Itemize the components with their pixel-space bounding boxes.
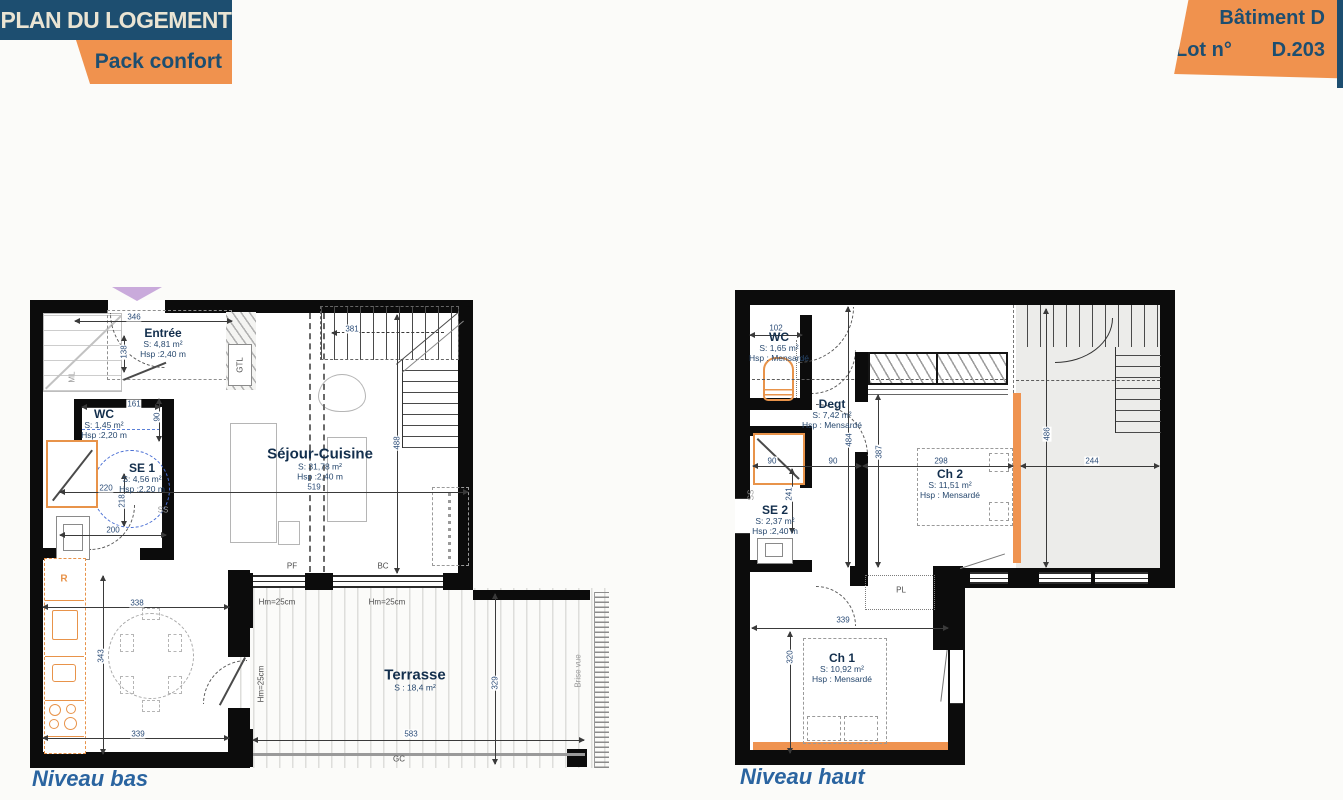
plan-caption-bas: Niveau bas — [32, 766, 148, 792]
dimension-label-218: 218 — [118, 493, 127, 508]
dimension-label-519: 519 — [306, 483, 321, 492]
dimension-label-138: 138 — [120, 344, 129, 359]
stairs — [1115, 347, 1161, 433]
pack-label: Pack confort — [95, 50, 222, 74]
pillow-icon — [807, 716, 841, 741]
entry-arrow-icon — [112, 287, 162, 301]
chair-icon — [120, 634, 134, 652]
dimension-label-339: 339 — [130, 730, 145, 739]
dimension-line — [753, 466, 861, 467]
dimension-line — [60, 535, 166, 536]
pillow-icon — [989, 502, 1009, 521]
dimension-label-381: 381 — [344, 325, 359, 334]
tag-label-ss: SS — [158, 506, 169, 515]
dimension-line — [1021, 466, 1159, 467]
dimension-label-200: 200 — [105, 526, 120, 535]
dimension-line — [103, 576, 104, 754]
dimension-label-90: 90 — [153, 412, 162, 423]
dimension-label-339: 339 — [835, 616, 850, 625]
dimension-label-486: 486 — [1043, 426, 1052, 441]
dimension-label-346: 346 — [126, 313, 141, 322]
dimension-line — [75, 321, 232, 322]
dimension-label-338: 338 — [129, 599, 144, 608]
insulation-strip — [1013, 393, 1021, 563]
wall — [228, 708, 250, 752]
sofa-icon — [230, 423, 277, 543]
window — [970, 572, 1008, 584]
building-label: Bâtiment D — [1219, 7, 1325, 30]
washbasin-inner — [63, 524, 83, 551]
chair-icon — [168, 676, 182, 694]
dimension-label-241: 241 — [785, 486, 794, 501]
wall — [228, 570, 250, 657]
tag-label-ml: ML — [68, 371, 77, 382]
tag-label-pl: PL — [896, 586, 906, 595]
dimension-label-161: 161 — [126, 400, 141, 409]
armchair-icon — [318, 374, 366, 412]
room-label-entr-e: EntréeS: 4,81 m²Hsp :2,40 m — [140, 327, 186, 359]
window-pf — [253, 575, 305, 588]
edge-strip — [1337, 0, 1343, 88]
brise-vue-screen — [594, 592, 609, 768]
dimension-label-484: 484 — [845, 432, 854, 447]
hob-burner-icon — [66, 704, 76, 714]
dimension-label-329: 329 — [491, 675, 500, 690]
dimension-label-298: 298 — [933, 457, 948, 466]
hob-burner-icon — [64, 717, 77, 730]
wall — [140, 548, 174, 560]
terrace-edge — [253, 753, 585, 756]
wall — [735, 290, 1175, 305]
pack-banner: Pack confort — [76, 40, 232, 84]
chair-icon — [142, 700, 160, 712]
page-title: PLAN DU LOGEMENT — [1, 7, 232, 34]
kitchen-divider — [45, 700, 84, 701]
chair-icon — [142, 608, 160, 620]
tag-label-brise-vue: Brise vue — [574, 654, 583, 687]
tag-label-r: R — [60, 575, 67, 584]
dimension-line — [253, 740, 584, 741]
wall — [1160, 290, 1175, 588]
dimension-label-102: 102 — [768, 324, 783, 333]
pillow-icon — [844, 716, 878, 741]
room-label-ch-2: Ch 2S: 11,51 m²Hsp : Mensardé — [920, 468, 980, 500]
stool-icon — [278, 521, 300, 545]
oven-icon — [52, 610, 78, 640]
chair-icon — [120, 676, 134, 694]
room-label-ch-1: Ch 1S: 10,92 m²Hsp : Mensardé — [812, 652, 872, 684]
wall — [855, 352, 868, 568]
room-label-wc: WCS: 1,65 m²Hsp : Mensardé — [749, 331, 809, 363]
tag-label-hm-25cm: Hm=25cm — [257, 666, 266, 703]
dimension-line — [752, 628, 948, 629]
wall — [567, 749, 587, 767]
wall — [735, 750, 965, 765]
room-label-degt: DegtS: 7,42 m²Hsp : Mensardé — [802, 398, 862, 430]
dimension-label-583: 583 — [403, 730, 418, 739]
sink-icon — [52, 664, 76, 682]
radiator-fins — [448, 492, 451, 559]
window-bc — [333, 575, 443, 588]
dimension-line — [878, 395, 879, 567]
tag-label-gtl: GTL — [236, 357, 245, 373]
dimension-label-320: 320 — [786, 649, 795, 664]
dimension-label-244: 244 — [1084, 457, 1099, 466]
window — [1039, 572, 1091, 584]
wardrobe-rail — [868, 389, 1008, 395]
wardrobe-icon — [868, 352, 1008, 385]
dimension-label-488: 488 — [393, 435, 402, 450]
lot-banner: Bâtiment D Lot n° D.203 — [1158, 0, 1337, 86]
window — [1095, 572, 1148, 584]
kitchen-divider — [45, 600, 84, 601]
chair-icon — [168, 634, 182, 652]
pillow-icon — [989, 453, 1009, 472]
kitchen-divider — [45, 656, 84, 657]
hob-burner-icon — [49, 719, 59, 729]
wall — [30, 300, 43, 768]
washbasin-inner — [765, 543, 783, 557]
plan-caption-haut: Niveau haut — [740, 764, 865, 790]
dimension-label-387: 387 — [875, 444, 884, 459]
room-label-terrasse: TerrasseS : 18,4 m² — [384, 667, 445, 693]
floorplan-page: { "header": { "title": "PLAN DU LOGEMENT… — [0, 0, 1343, 800]
tag-label-pf: PF — [287, 562, 297, 571]
dimension-label-343: 343 — [97, 648, 106, 663]
wall — [473, 590, 590, 600]
wardrobe-divider — [936, 352, 938, 385]
room-label-s-jour-cuisine: Séjour-CuisineS: 31,78 m²Hsp :2,40 m — [267, 447, 373, 482]
room-label-se-2: SE 2S: 2,37 m²Hsp :2,40 m — [752, 504, 798, 536]
tag-label-hm-25cm: Hm=25cm — [259, 598, 296, 607]
roof-line — [1013, 305, 1014, 393]
page-title-banner: PLAN DU LOGEMENT — [0, 0, 232, 40]
hob-burner-icon — [49, 704, 61, 716]
room-label-wc: WCS: 1,45 m²Hsp :2,20 m — [81, 408, 127, 440]
tag-label-hm-25cm: Hm=25cm — [369, 598, 406, 607]
kitchen-divider — [45, 736, 84, 737]
dimension-label-90: 90 — [767, 457, 778, 466]
lot-number: Lot n° D.203 — [1175, 39, 1325, 62]
wall — [305, 573, 333, 590]
room-label-se-1: SE 1S: 4,56 m²Hsp :2,20 m — [119, 462, 165, 494]
wall — [74, 399, 162, 407]
wall — [443, 573, 473, 590]
window-opening — [735, 498, 750, 534]
wall — [933, 566, 963, 650]
dimension-label-220: 220 — [98, 484, 113, 493]
tag-label-bc: BC — [377, 562, 388, 571]
stairs — [402, 360, 458, 448]
tag-label-gc: GC — [393, 755, 405, 764]
beam-line — [309, 313, 311, 572]
tag-label-ss: SS — [747, 490, 756, 501]
dimension-label-90: 90 — [828, 457, 839, 466]
